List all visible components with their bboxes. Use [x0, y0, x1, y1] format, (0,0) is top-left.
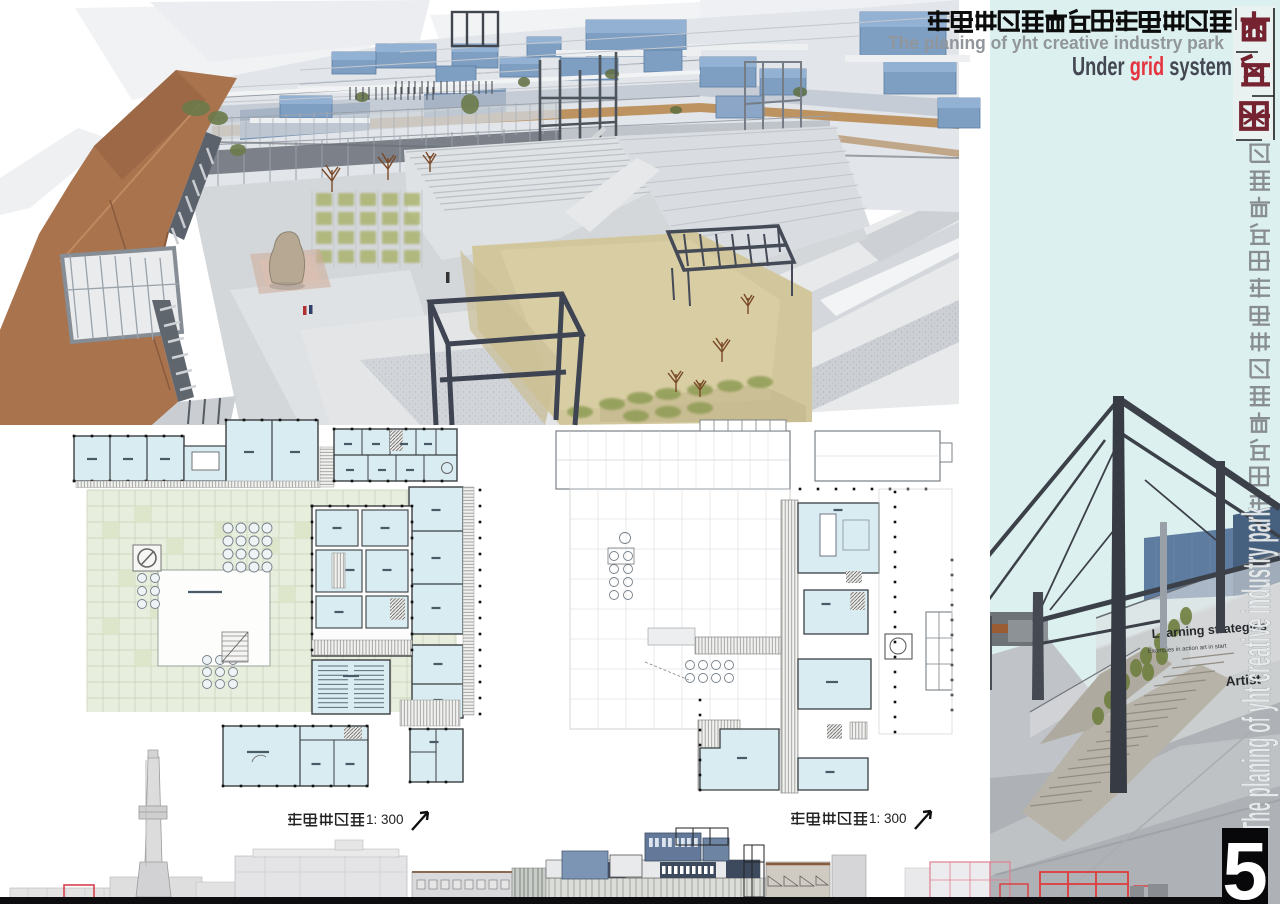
- svg-text:Under grid system: Under grid system: [1072, 51, 1232, 81]
- svg-text:The planing of yht creative in: The planing of yht creative industry par…: [1235, 507, 1279, 832]
- svg-text:The planing of yht creative in: The planing of yht creative industry par…: [888, 32, 1225, 53]
- svg-text:5: 5: [1222, 826, 1268, 904]
- svg-text:1: 300: 1: 300: [869, 811, 907, 826]
- svg-text:1: 300: 1: 300: [366, 812, 404, 827]
